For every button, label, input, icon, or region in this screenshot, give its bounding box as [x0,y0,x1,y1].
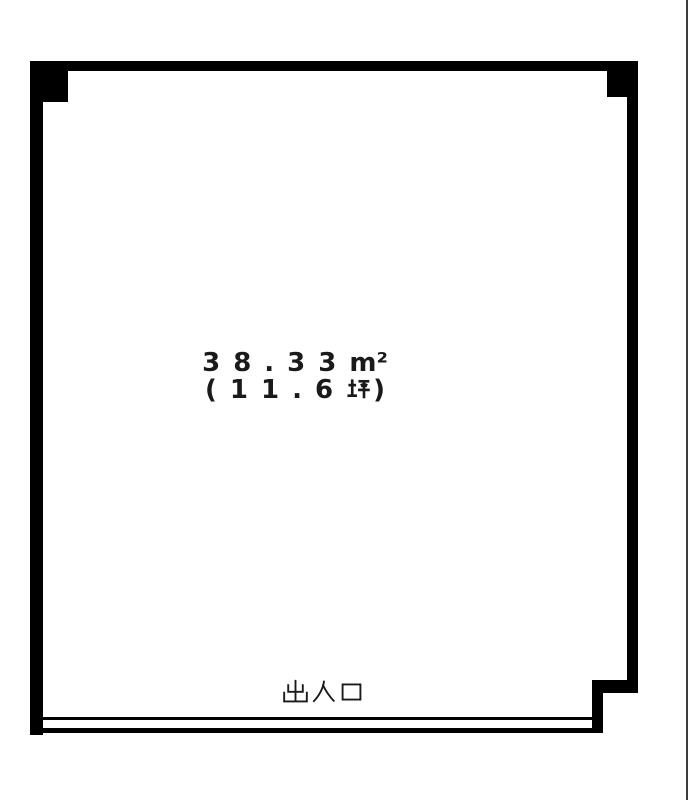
storefront-line-lower [43,728,592,733]
kanji-de [282,678,309,705]
room-area-block: 38.33m² (11.6) [100,350,490,403]
area-tsubo-label: (11.6) [100,376,490,403]
pillar-top-left [30,61,68,102]
area-label: 38.33m² [100,350,490,376]
image-right-edge-line [686,0,688,800]
area-value: 38.33 [202,348,349,378]
wall-right [627,61,638,693]
wall-left [30,61,43,735]
entrance-label [282,678,365,705]
tsubo-suffix: ) [373,375,385,405]
pillar-top-right [607,61,638,97]
floorplan-canvas: 38.33m² (11.6) [0,0,689,800]
tsubo-prefix: (11.6 [205,375,346,405]
wall-step-bottom-right-vertical [592,680,603,733]
kanji-nyu [310,678,337,705]
tsubo-kanji [346,376,370,400]
wall-top [30,61,638,71]
kanji-kuchi [338,678,365,705]
area-unit: m² [349,348,387,378]
storefront-line-upper [43,717,592,720]
